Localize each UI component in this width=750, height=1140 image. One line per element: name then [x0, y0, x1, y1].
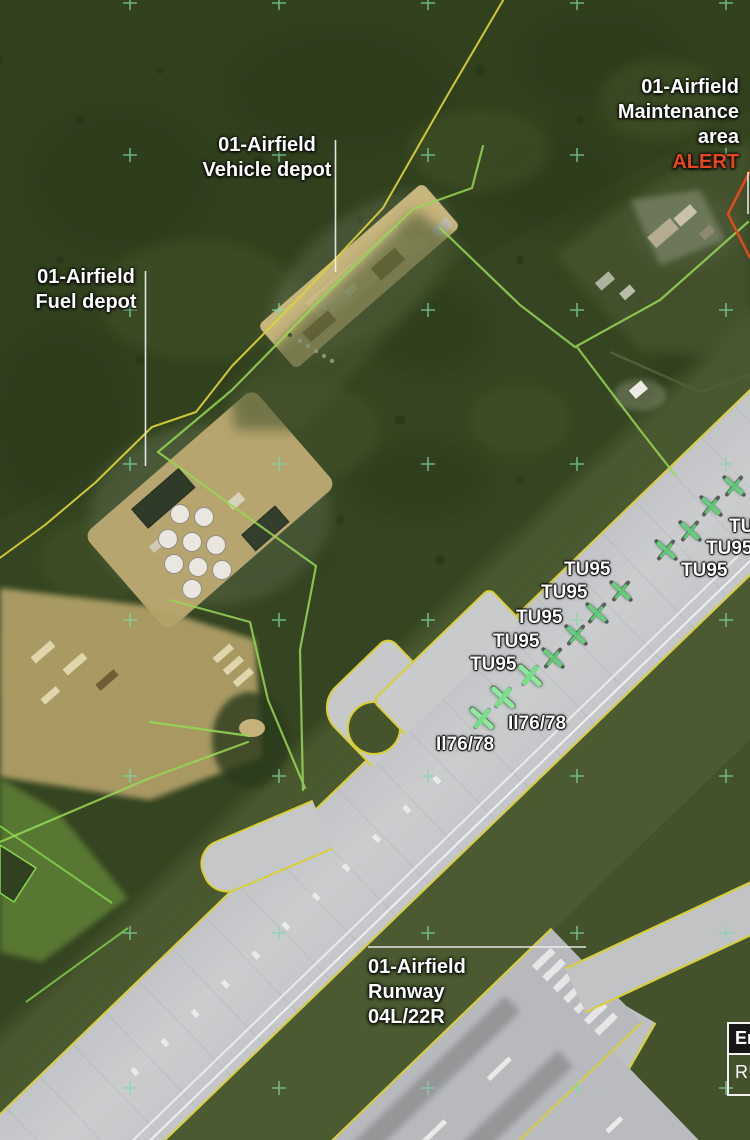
maintenance-label-line3: area: [618, 125, 739, 150]
vehicle-depot-label-line1: 01-Airfield: [203, 133, 332, 158]
runway-label-line2: Runway: [368, 980, 466, 1005]
info-callout-subtitle: RU: [729, 1053, 750, 1092]
runway-label-line3: 04L/22R: [368, 1005, 466, 1030]
fuel-depot-label-line1: 01-Airfield: [35, 265, 136, 290]
fuel-depot-label-line2: Fuel depot: [35, 290, 136, 315]
runway-label-line1: 01-Airfield: [368, 955, 466, 980]
vehicle-depot-label-line2: Vehicle depot: [203, 158, 332, 183]
il76-label: Il76/78: [436, 735, 494, 755]
il76-label: Il76/78: [508, 714, 566, 734]
satellite-map[interactable]: TU95TU95TU95TU95TU95TU95TU95TU95Il76/78I…: [0, 0, 750, 1140]
info-callout: En RU: [727, 1022, 750, 1096]
tu95-label: TU95: [729, 517, 750, 537]
runway-label: 01-Airfield Runway 04L/22R: [368, 955, 466, 1030]
alert-badge: ALERT: [618, 150, 739, 175]
maintenance-label-line2: Maintenance: [618, 100, 739, 125]
tu95-label: TU95: [541, 583, 587, 603]
info-callout-title: En: [729, 1024, 750, 1053]
fuel-depot-label: 01-Airfield Fuel depot: [35, 265, 136, 315]
tu95-label: TU95: [564, 560, 610, 580]
vehicle-depot-label: 01-Airfield Vehicle depot: [203, 133, 332, 183]
tu95-label: TU95: [470, 655, 516, 675]
maintenance-label-line1: 01-Airfield: [618, 75, 739, 100]
maintenance-area-label: 01-Airfield Maintenance area ALERT: [618, 75, 739, 175]
tu95-label: TU95: [706, 539, 750, 559]
tu95-label: TU95: [681, 561, 727, 581]
tu95-label: TU95: [516, 608, 562, 628]
tu95-label: TU95: [493, 632, 539, 652]
